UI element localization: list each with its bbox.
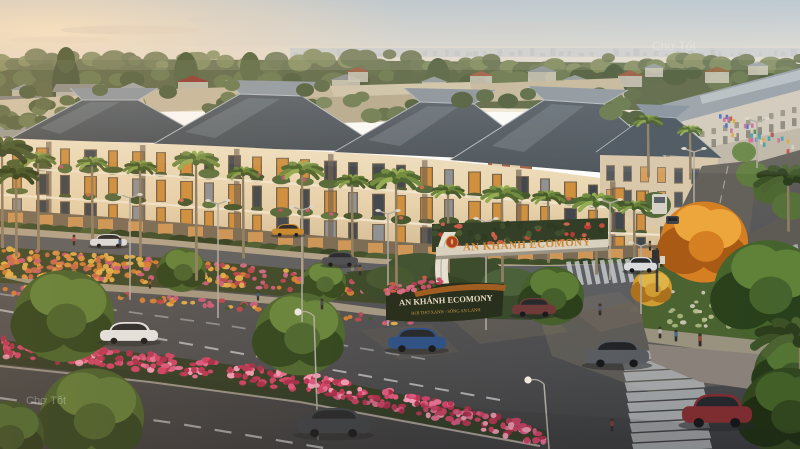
svg-text:Chợ Tốt: Chợ Tốt	[652, 39, 696, 53]
svg-text:Chợ Tốt: Chợ Tốt	[26, 395, 66, 407]
